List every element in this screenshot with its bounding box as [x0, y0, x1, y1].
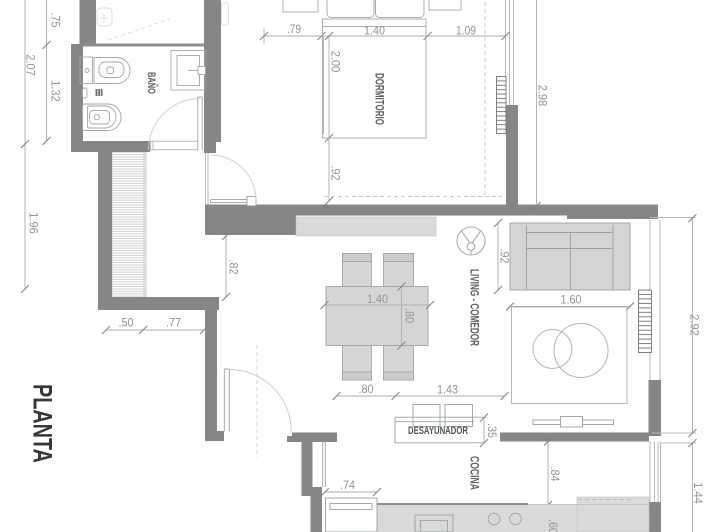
- svg-text:1.09: 1.09: [456, 24, 476, 38]
- svg-text:2.07: 2.07: [24, 54, 38, 76]
- svg-text:.35: .35: [485, 423, 499, 438]
- svg-text:2.98: 2.98: [536, 85, 550, 107]
- svg-text:1.40: 1.40: [364, 24, 385, 38]
- svg-text:.50: .50: [119, 316, 134, 330]
- svg-text:1.32: 1.32: [49, 80, 63, 102]
- svg-text:1.43: 1.43: [437, 383, 458, 397]
- svg-text:.77: .77: [166, 316, 181, 330]
- svg-text:.80: .80: [403, 308, 417, 323]
- svg-text:LIVING - COMEDOR: LIVING - COMEDOR: [468, 269, 480, 346]
- svg-text:.92: .92: [498, 249, 512, 264]
- svg-text:1.44: 1.44: [691, 482, 705, 504]
- svg-text:1.96: 1.96: [27, 212, 41, 234]
- svg-text:.84: .84: [548, 467, 562, 482]
- svg-text:DESAYUNADOR: DESAYUNADOR: [408, 425, 468, 437]
- svg-text:.92: .92: [329, 166, 343, 181]
- svg-text:.75: .75: [49, 13, 63, 28]
- svg-text:DORMITORIO: DORMITORIO: [373, 73, 385, 125]
- svg-text:.74: .74: [340, 478, 355, 492]
- svg-text:2.92: 2.92: [688, 314, 702, 336]
- svg-text:BAÑO: BAÑO: [145, 72, 158, 94]
- svg-text:.60: .60: [546, 519, 560, 532]
- svg-text:COCINA: COCINA: [468, 456, 480, 490]
- svg-text:1.60: 1.60: [561, 293, 582, 307]
- svg-text:2.00: 2.00: [329, 51, 343, 73]
- svg-text:PLANTA: PLANTA: [28, 384, 58, 463]
- svg-text:.80: .80: [359, 382, 374, 396]
- svg-text:.82: .82: [227, 260, 241, 275]
- svg-text:1.40: 1.40: [367, 292, 388, 306]
- svg-text:.79: .79: [287, 22, 301, 36]
